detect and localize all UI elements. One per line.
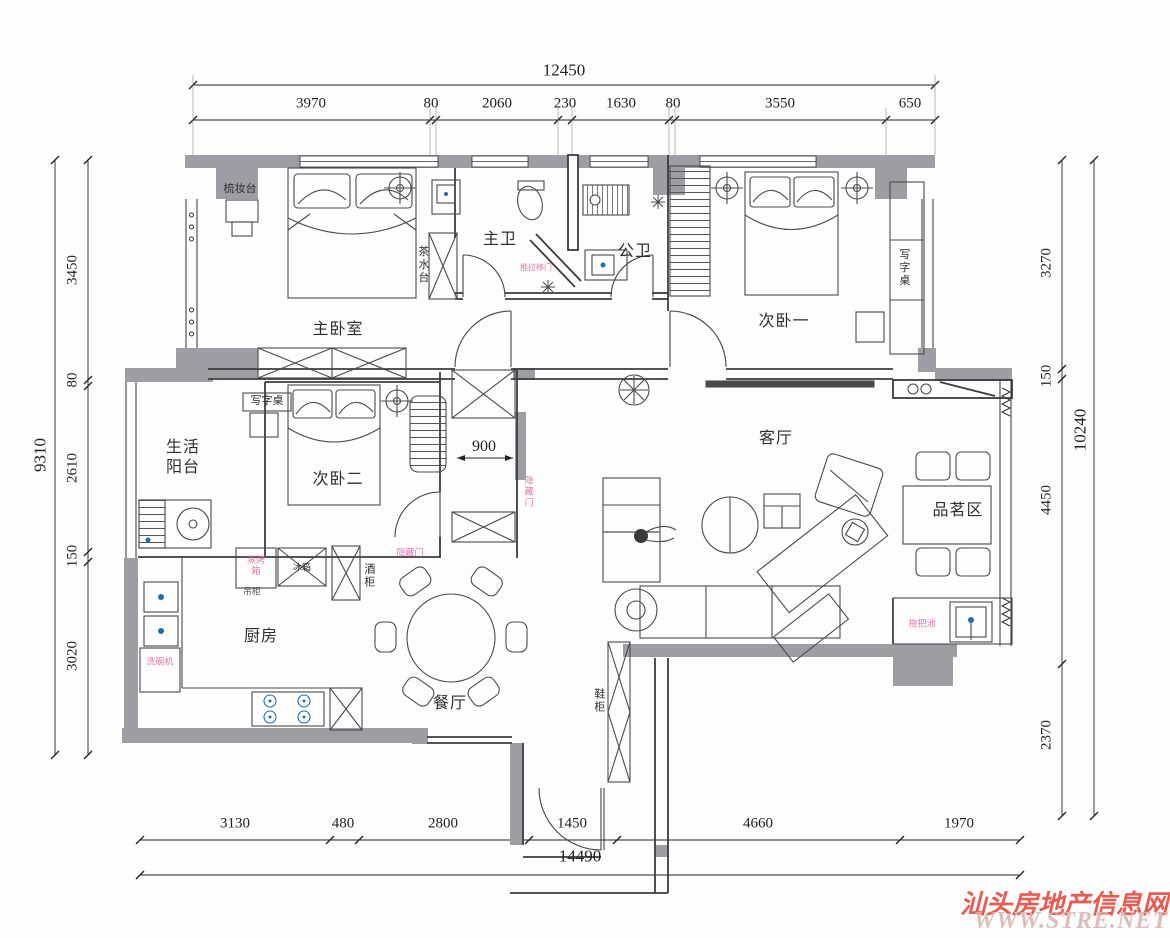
partitions — [138, 155, 1012, 893]
wine-cabinet-label: 酒柜 — [361, 563, 375, 589]
shoe-cabinet-label: 鞋柜 — [591, 688, 605, 714]
balcony-laundry — [139, 500, 211, 548]
dim-left-seg-2: 2610 — [64, 453, 83, 483]
dim-top-seg-4: 1630 — [606, 95, 636, 114]
desk-bedroom1-label: 写字桌 — [896, 249, 910, 288]
doors — [395, 255, 726, 850]
floor-plan-page: 主卧室 次卧一 次卧二 主卫 公卫 客厅 餐厅 厨房 生活阳台 品茗区 梳妆台 … — [0, 0, 1170, 938]
dim-bottom-seg-4: 4660 — [743, 815, 773, 834]
dim-bottom-seg-3: 1450 — [557, 815, 587, 834]
hidden-door-label-corridor: 隐藏门 — [522, 476, 533, 509]
dressing-stool — [232, 222, 252, 236]
dim-right-seg-0: 3270 — [1038, 248, 1057, 278]
dim-top-seg-5: 80 — [666, 95, 681, 114]
room-label-kitchen: 厨房 — [244, 627, 278, 647]
dim-left-seg-4: 3020 — [64, 641, 83, 671]
room-label-bedroom-two: 次卧二 — [312, 470, 363, 490]
desk-bedroom2-stool — [250, 413, 278, 437]
shoe-cabinet-shape — [608, 642, 630, 782]
dim-right-seg-2: 4450 — [1038, 485, 1057, 515]
dim-top-seg-1: 80 — [424, 95, 439, 114]
dim-left-seg-0: 3450 — [64, 255, 83, 285]
plant — [619, 375, 649, 405]
hanging-cabinet-label: 吊柜 — [243, 586, 261, 597]
walls — [122, 155, 1012, 857]
dim-bottom-total: 14490 — [559, 845, 602, 866]
dim-top-seg-6: 3550 — [765, 95, 795, 114]
steam-oven-label: 蒸烤箱 — [243, 555, 269, 578]
window-walls — [126, 199, 1011, 646]
bedroom1-bed — [745, 172, 838, 295]
tea-station-cabinet — [429, 233, 457, 299]
room-label-public-bath: 公卫 — [618, 242, 652, 262]
dim-right-total: 10240 — [1069, 409, 1090, 452]
dim-top-seg-0: 3970 — [296, 95, 326, 114]
room-label-dining-room: 餐厅 — [433, 694, 467, 714]
hidden-door-label-dining: 隐藏门 — [396, 547, 423, 558]
mop-sink-label: 拖把池 — [908, 618, 935, 629]
furniture — [139, 166, 1012, 782]
dim-corridor-width: 900 — [472, 437, 496, 457]
room-label-bedroom-one: 次卧一 — [758, 312, 809, 332]
fridge-label: 冰箱 — [293, 562, 311, 573]
dishwasher-label: 洗碗机 — [146, 656, 173, 667]
dim-bottom-seg-5: 1970 — [944, 815, 974, 834]
room-label-master-bath: 主卫 — [483, 230, 517, 250]
dim-top-total: 12450 — [543, 59, 586, 80]
dim-top-seg-7: 650 — [899, 95, 922, 114]
room-label-balcony: 生活阳台 — [163, 438, 203, 478]
room-label-tea-area: 品茗区 — [932, 501, 983, 521]
desk-bedroom2-label: 写字桌 — [251, 395, 284, 409]
watermark-site-url: WWW.STRE.NET — [928, 908, 1168, 935]
dim-bottom-seg-0: 3130 — [220, 815, 250, 834]
dim-left-total: 9310 — [29, 438, 50, 472]
living-room-furniture — [603, 452, 888, 662]
tea-station-label: 茶水台 — [415, 246, 429, 285]
dressing-table-label: 梳妆台 — [224, 183, 257, 197]
tv — [706, 381, 874, 387]
nightstand — [856, 312, 884, 342]
wardrobe-bedroom1 — [670, 166, 710, 296]
room-label-living-room: 客厅 — [759, 429, 793, 449]
dim-right-seg-1: 150 — [1038, 365, 1057, 388]
dim-top-seg-2: 2060 — [482, 95, 512, 114]
dim-bottom-seg-2: 2800 — [428, 815, 458, 834]
dining-set — [375, 564, 527, 709]
dim-top-seg-3: 230 — [554, 95, 577, 114]
wardrobe-master — [258, 348, 406, 378]
dim-right-seg-3: 2370 — [1038, 720, 1057, 750]
dim-bottom-seg-1: 480 — [332, 815, 355, 834]
dim-left-seg-1: 80 — [64, 373, 83, 388]
dim-left-seg-3: 150 — [64, 545, 83, 568]
dressing-table — [226, 200, 258, 222]
sliding-door-label: 推拉移门 — [519, 263, 553, 273]
room-label-master-bedroom: 主卧室 — [312, 320, 363, 340]
